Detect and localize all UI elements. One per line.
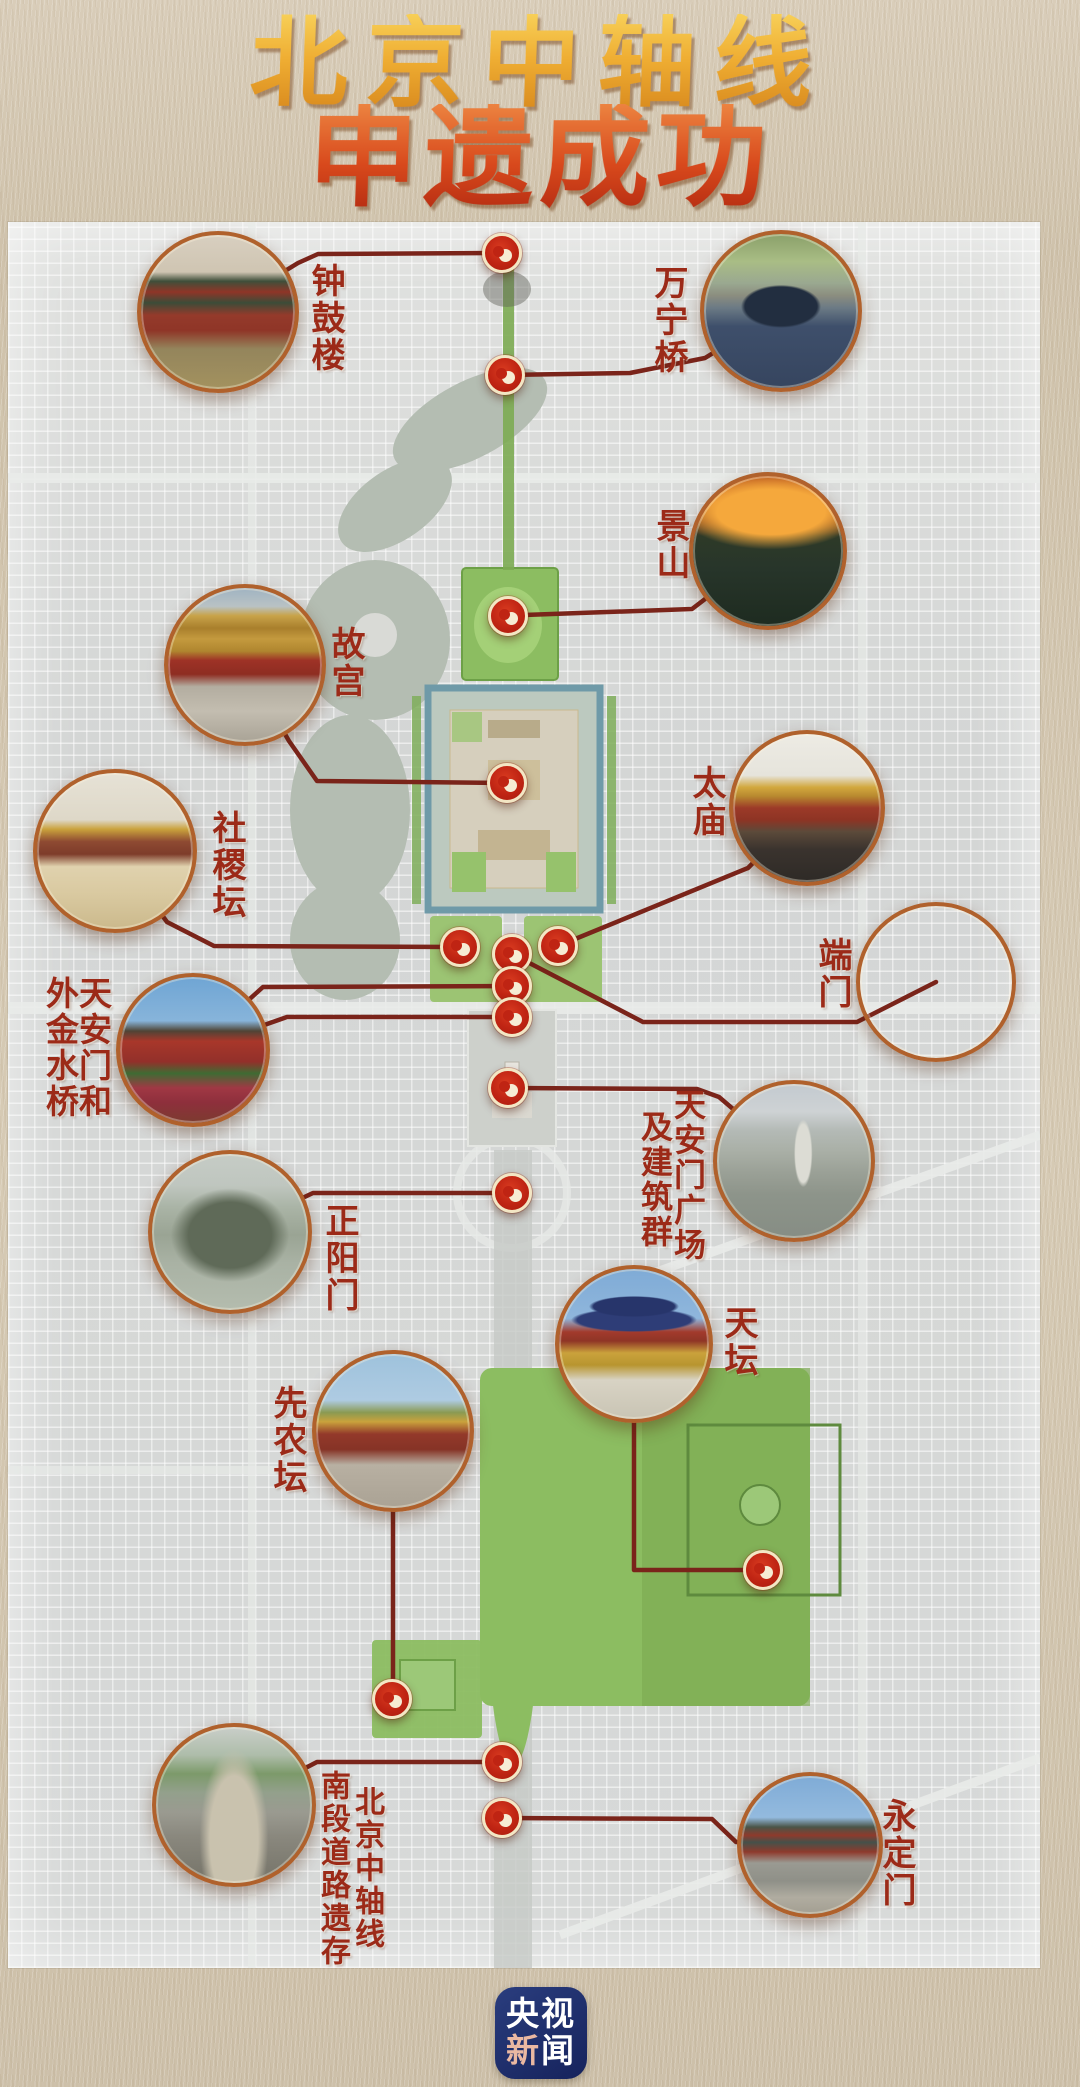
pin-comma-icon bbox=[509, 1013, 522, 1026]
marker-zhengyangmen bbox=[492, 1173, 532, 1213]
marker-taimiao bbox=[538, 926, 578, 966]
marker-jingshan bbox=[488, 596, 528, 636]
logo-char-shi: 视 bbox=[541, 1995, 576, 2032]
photo-wanningqiao bbox=[700, 230, 862, 392]
logo-char-wen: 闻 bbox=[541, 2032, 576, 2069]
marker-wanningqiao bbox=[485, 355, 525, 395]
label-gugong: 故宫 bbox=[328, 626, 362, 700]
pin-comma-icon bbox=[509, 950, 522, 963]
cctv-news-logo: 央视 新闻 bbox=[495, 1987, 587, 2079]
marker-nanduan bbox=[482, 1742, 522, 1782]
label-tiananmen-col2: 外金水桥 bbox=[44, 976, 77, 1120]
pin-comma-icon bbox=[760, 1566, 773, 1579]
poster: 北京中轴线 申遗成功 bbox=[0, 0, 1080, 2087]
photo-xiannongtan bbox=[312, 1350, 474, 1512]
pin-comma-icon bbox=[555, 942, 568, 955]
cctv-news-logo-row1: 央视 bbox=[506, 1996, 576, 2033]
photo-zhonggulou bbox=[137, 231, 299, 393]
label-jingshan: 景山 bbox=[653, 508, 687, 582]
pin-comma-icon bbox=[509, 1189, 522, 1202]
pin-comma-icon bbox=[457, 943, 470, 956]
photo-gugong bbox=[164, 584, 326, 746]
label-zhonggulou: 钟鼓楼 bbox=[308, 263, 342, 374]
pin-comma-icon bbox=[505, 612, 518, 625]
photo-zhengyangmen bbox=[148, 1150, 312, 1314]
label-yongdingmen: 永定门 bbox=[879, 1798, 913, 1909]
pin-comma-icon bbox=[505, 1084, 518, 1097]
cctv-news-logo-row2: 新闻 bbox=[506, 2033, 576, 2070]
marker-tiantan bbox=[743, 1550, 783, 1590]
pin-comma-icon bbox=[502, 371, 515, 384]
marker-xiannongtan bbox=[372, 1679, 412, 1719]
photo-jingshan bbox=[689, 472, 847, 630]
marker-yongdingmen bbox=[482, 1798, 522, 1838]
label-zhengyangmen: 正阳门 bbox=[322, 1203, 356, 1314]
marker-zhonggulou bbox=[482, 233, 522, 273]
marker-gugong bbox=[487, 763, 527, 803]
logo-char-xin: 新 bbox=[506, 2032, 541, 2069]
pin-comma-icon bbox=[499, 1814, 512, 1827]
pin-comma-icon bbox=[509, 982, 522, 995]
label-duanmen: 端门 bbox=[815, 937, 849, 1011]
photo-taimiao bbox=[729, 730, 885, 886]
label-nanduan: 北京中轴线 bbox=[351, 1786, 381, 1951]
pin-comma-icon bbox=[504, 779, 517, 792]
label-wanningqiao: 万宁桥 bbox=[651, 265, 685, 376]
label-guangchang: 天安门广场 bbox=[672, 1088, 704, 1263]
photo-nanduan bbox=[152, 1723, 316, 1887]
photo-shejitan bbox=[33, 769, 197, 933]
label-nanduan-col2: 南段道路遗存 bbox=[317, 1770, 347, 1968]
label-tiantan: 天坛 bbox=[721, 1305, 755, 1379]
photo-guangchang bbox=[713, 1080, 875, 1242]
photo-yongdingmen bbox=[737, 1772, 883, 1918]
label-guangchang-col2: 及建筑群 bbox=[639, 1110, 671, 1250]
logo-char-yang: 央 bbox=[506, 1995, 541, 2032]
label-xiannongtan: 先农坛 bbox=[270, 1385, 304, 1496]
marker-tiananmen-2 bbox=[492, 997, 532, 1037]
pin-comma-icon bbox=[499, 1758, 512, 1771]
poster-title-line2: 申遗成功 bbox=[0, 104, 1080, 214]
pin-comma-icon bbox=[389, 1695, 402, 1708]
label-shejitan: 社稷坛 bbox=[209, 810, 243, 921]
photo-tiantan bbox=[555, 1265, 713, 1423]
marker-guangchang bbox=[488, 1068, 528, 1108]
label-tiananmen: 天安门和 bbox=[77, 976, 110, 1120]
label-taimiao: 太庙 bbox=[689, 765, 723, 839]
photo-tiananmen bbox=[116, 973, 270, 1127]
marker-shejitan bbox=[440, 927, 480, 967]
photo-duanmen bbox=[856, 902, 1016, 1062]
pin-comma-icon bbox=[499, 249, 512, 262]
